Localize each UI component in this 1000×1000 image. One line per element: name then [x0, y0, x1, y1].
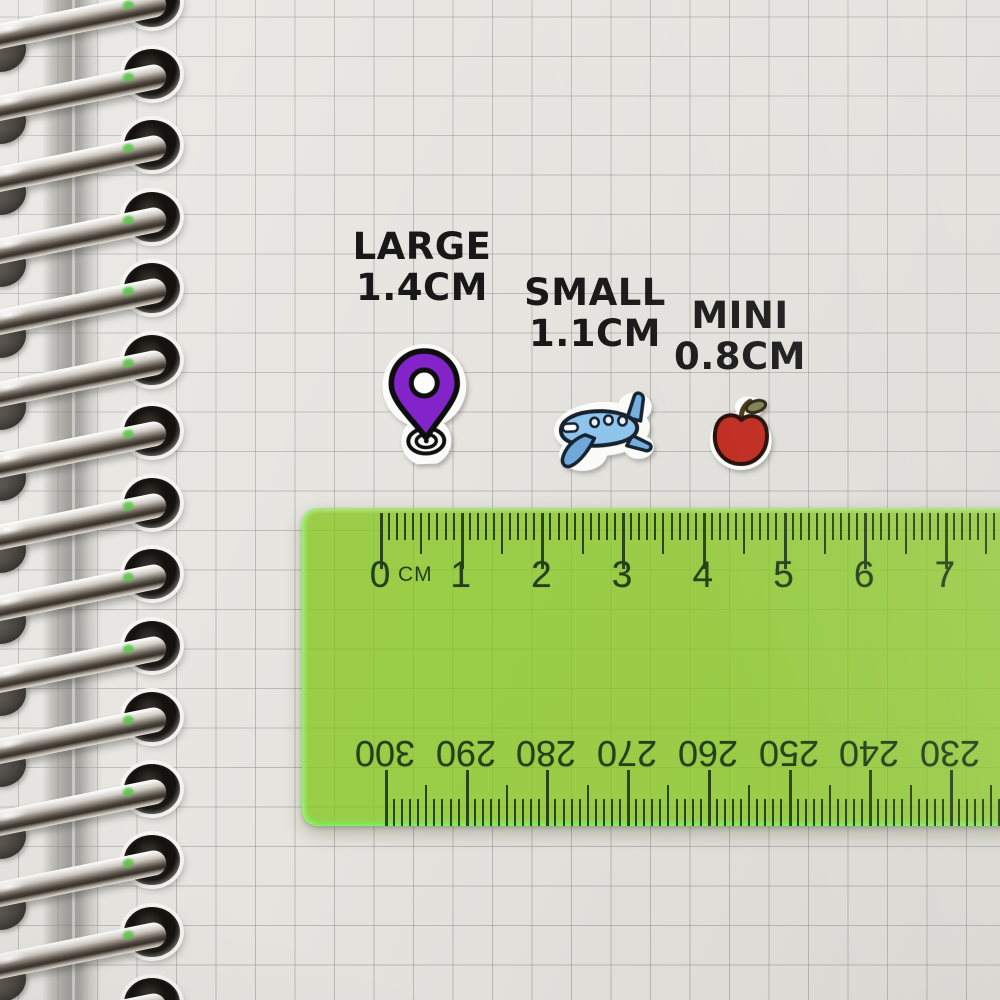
ruler-tick	[482, 799, 484, 826]
ruler-cm-number: 2	[531, 554, 552, 596]
notebook-photo: LARGE 1.4CM SMALL 1.1CM MINI 0.8CM	[0, 0, 1000, 1000]
ruler-tick	[501, 513, 503, 554]
ruler-tick	[469, 513, 471, 540]
ruler-tick	[969, 513, 971, 540]
ruler-tick	[921, 513, 923, 540]
airplane-sticker[interactable]	[546, 386, 656, 475]
ruler-tick	[425, 785, 427, 826]
ruler-tick	[816, 513, 818, 540]
green-reflection	[122, 357, 135, 368]
ruler-tick	[993, 513, 995, 540]
ruler-tick	[789, 770, 792, 826]
ruler-tick	[401, 799, 403, 826]
ruler-tick	[821, 799, 823, 826]
ruler-tick	[877, 799, 879, 826]
ruler-mm-number: 270	[597, 732, 657, 774]
ruler-tick	[893, 799, 895, 826]
ruler-tick	[619, 799, 621, 826]
ruler-tick	[735, 513, 737, 540]
ruler-tick	[937, 513, 939, 540]
ruler-tick	[614, 513, 616, 540]
ruler-tick	[888, 513, 890, 540]
green-reflection	[122, 214, 135, 225]
ruler-mm-number: 300	[355, 732, 415, 774]
ruler-mm-number: 230	[920, 732, 980, 774]
ruler-tick	[493, 513, 495, 540]
ruler-tick	[433, 799, 435, 826]
ruler-tick	[417, 799, 419, 826]
ruler-tick	[869, 770, 872, 826]
binder-ring	[0, 943, 220, 1000]
ruler-tick	[412, 513, 414, 540]
ruler-tick	[982, 799, 984, 826]
ruler-tick	[606, 513, 608, 540]
ruler-tick	[797, 799, 799, 826]
ruler-tick	[700, 799, 702, 826]
ruler-tick	[837, 799, 839, 826]
green-reflection	[122, 929, 135, 940]
green-reflection	[122, 71, 135, 82]
ruler-tick	[748, 785, 750, 826]
ruler-tick	[563, 799, 565, 826]
ruler-tick	[571, 799, 573, 826]
ruler-tick	[525, 513, 527, 540]
ruler-tick	[679, 513, 681, 540]
ruler-tick	[772, 799, 774, 826]
ruler-tick	[719, 513, 721, 540]
ruler-cm-number: 0	[370, 554, 391, 596]
ruler-mm-number: 250	[758, 732, 818, 774]
ruler-tick	[840, 513, 842, 540]
ruler-tick	[458, 799, 460, 826]
ruler-tick	[824, 513, 826, 554]
ruler-tick	[474, 799, 476, 826]
ruler-tick	[420, 513, 422, 554]
ruler-tick	[517, 513, 519, 540]
ruler-tick	[687, 513, 689, 540]
ruler-tick	[651, 799, 653, 826]
ruler-mm-number: 240	[839, 732, 899, 774]
size-label-large: LARGE 1.4CM	[337, 226, 507, 309]
ruler-tick	[756, 799, 758, 826]
label-mini-name: MINI	[655, 295, 825, 336]
ruler-tick	[942, 799, 944, 826]
ruler-tick	[530, 799, 532, 826]
ruler-tick	[856, 513, 858, 540]
ruler-tick	[958, 799, 960, 826]
ruler-tick	[885, 799, 887, 826]
ruler-tick	[595, 799, 597, 826]
ruler-tick	[743, 513, 745, 554]
green-reflection	[122, 715, 135, 726]
ruler-tick	[638, 513, 640, 540]
ruler[interactable]: 01234567 CM 300290280270260250240230	[302, 508, 1000, 826]
ruler-tick	[695, 513, 697, 540]
ruler-tick	[635, 799, 637, 826]
ruler-tick	[808, 513, 810, 540]
green-reflection	[122, 572, 135, 583]
ruler-tick	[759, 513, 761, 540]
size-label-mini: MINI 0.8CM	[655, 295, 825, 378]
ruler-tick	[590, 513, 592, 540]
ruler-mm-number: 290	[436, 732, 496, 774]
ruler-tick	[880, 513, 882, 540]
ruler-tick	[832, 513, 834, 540]
label-large-size: 1.4CM	[337, 267, 507, 308]
ruler-tick	[692, 799, 694, 826]
ruler-tick	[848, 513, 850, 540]
green-reflection	[122, 143, 135, 154]
ruler-tick	[711, 513, 713, 540]
ruler-tick	[450, 799, 452, 826]
ruler-tick	[966, 799, 968, 826]
ruler-tick	[913, 513, 915, 540]
ruler-tick	[611, 799, 613, 826]
green-reflection	[122, 429, 135, 440]
ruler-tick	[910, 785, 912, 826]
ruler-tick	[393, 799, 395, 826]
ruler-tick	[764, 799, 766, 826]
ruler-tick	[708, 770, 711, 826]
ruler-tick	[546, 770, 549, 826]
ruler-tick	[684, 799, 686, 826]
ruler-tick	[926, 799, 928, 826]
ruler-tick	[654, 513, 656, 540]
ruler-tick	[477, 513, 479, 540]
location-pin-sticker[interactable]	[379, 343, 471, 466]
ruler-tick	[404, 513, 406, 540]
ruler-tick	[662, 513, 664, 554]
ruler-tick	[498, 799, 500, 826]
ruler-tick	[716, 799, 718, 826]
ruler-tick	[813, 799, 815, 826]
ruler-tick	[428, 513, 430, 540]
ruler-tick	[388, 513, 390, 540]
ruler-tick	[727, 513, 729, 540]
green-reflection	[122, 286, 135, 297]
apple-sticker[interactable]	[704, 394, 779, 472]
ruler-tick	[792, 513, 794, 540]
label-large-name: LARGE	[337, 226, 507, 267]
ruler-tick	[554, 799, 556, 826]
ruler-tick	[671, 513, 673, 540]
ruler-tick	[977, 513, 979, 540]
ruler-tick	[676, 799, 678, 826]
airplane-icon	[546, 386, 656, 475]
ruler-tick	[436, 513, 438, 540]
ruler-tick	[509, 513, 511, 540]
ruler-cm-number: 5	[773, 554, 794, 596]
ruler-tick	[950, 770, 953, 826]
ruler-tick	[934, 799, 936, 826]
ruler-tick	[453, 513, 455, 540]
ruler-tick	[396, 513, 398, 540]
ruler-tick	[732, 799, 734, 826]
ruler-tick	[929, 513, 931, 540]
green-reflection	[122, 643, 135, 654]
ruler-tick	[579, 799, 581, 826]
ruler-tick	[646, 513, 648, 540]
ruler-tick	[667, 785, 669, 826]
green-reflection	[122, 500, 135, 511]
ruler-tick	[780, 799, 782, 826]
ruler-mm-number: 280	[516, 732, 576, 774]
ruler-tick	[582, 513, 584, 554]
ruler-tick	[490, 799, 492, 826]
ruler-tick	[845, 799, 847, 826]
ruler-tick	[385, 770, 388, 826]
ruler-tick	[961, 513, 963, 540]
ruler-tick	[775, 513, 777, 540]
ruler-tick	[974, 799, 976, 826]
ruler-tick	[990, 785, 992, 826]
ruler-tick	[805, 799, 807, 826]
ruler-tick	[549, 513, 551, 540]
ruler-tick	[506, 785, 508, 826]
ruler-tick	[767, 513, 769, 540]
apple-icon	[704, 394, 779, 472]
ruler-cm-number: 7	[935, 554, 956, 596]
ruler-tick	[901, 799, 903, 826]
ruler-tick	[872, 513, 874, 540]
ruler-tick	[985, 513, 987, 554]
ruler-tick	[740, 799, 742, 826]
ruler-tick	[558, 513, 560, 540]
ruler-tick	[853, 799, 855, 826]
ruler-tick	[441, 799, 443, 826]
green-reflection	[122, 0, 135, 11]
location-pin-icon	[379, 343, 471, 466]
ruler-tick	[522, 799, 524, 826]
ruler-tick	[918, 799, 920, 826]
ruler-tick	[514, 799, 516, 826]
ruler-tick	[566, 513, 568, 540]
ruler-tick	[598, 513, 600, 540]
ruler-tick	[751, 513, 753, 540]
ruler-tick	[800, 513, 802, 540]
green-reflection	[122, 858, 135, 869]
green-reflection	[122, 786, 135, 797]
ruler-tick	[659, 799, 661, 826]
ruler-tick	[445, 513, 447, 540]
ruler-tick	[630, 513, 632, 540]
ruler-cm-number: 4	[693, 554, 714, 596]
ruler-cm-number: 1	[450, 554, 471, 596]
ruler-tick	[603, 799, 605, 826]
ruler-tick	[538, 799, 540, 826]
ruler-tick	[861, 799, 863, 826]
ruler-tick	[533, 513, 535, 540]
ruler-tick	[627, 770, 630, 826]
ruler-tick	[587, 785, 589, 826]
ruler-tick	[485, 513, 487, 540]
ruler-tick	[905, 513, 907, 554]
ruler-cm-number: 6	[854, 554, 875, 596]
ruler-tick	[409, 799, 411, 826]
ruler-tick	[466, 770, 469, 826]
ruler-tick	[953, 513, 955, 540]
label-mini-size: 0.8CM	[655, 336, 825, 377]
ruler-tick	[829, 785, 831, 826]
ruler-tick	[643, 799, 645, 826]
ruler-tick	[574, 513, 576, 540]
ruler-tick	[896, 513, 898, 540]
ruler-unit-label: CM	[398, 563, 433, 587]
ruler-cm-number: 3	[612, 554, 633, 596]
ruler-mm-number: 260	[678, 732, 738, 774]
ruler-tick	[724, 799, 726, 826]
